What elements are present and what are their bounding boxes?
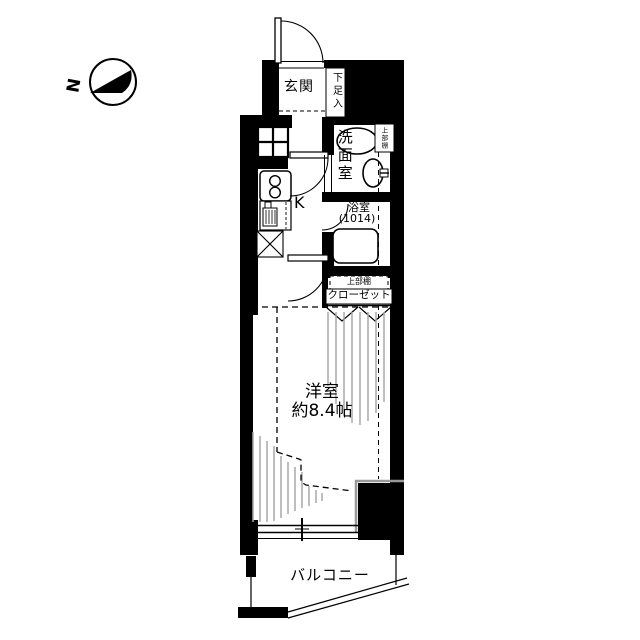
shoe-cabinet-label: 下足入 (330, 72, 341, 111)
washbasin-icon (363, 159, 389, 187)
closet-upper-shelf-label: 上部棚 (330, 278, 388, 286)
kitchen-door-icon (290, 152, 328, 196)
north-arrow-icon (90, 59, 136, 105)
four-pane-grid-icon (258, 127, 288, 157)
x-box-appliance-space-icon (257, 231, 283, 257)
kitchen-fixtures (257, 127, 291, 257)
bifold-door-icon (326, 307, 358, 321)
floor-plan-drawing (0, 0, 640, 640)
washroom-label: 洗面室 (336, 129, 352, 183)
balcony-label: バルコニー (268, 568, 392, 584)
bathroom-size-label: (1014) (330, 213, 384, 225)
bathtub-icon (333, 229, 378, 263)
bifold-door-icon (359, 307, 391, 321)
compass-north-label: N (61, 76, 81, 93)
kitchen-sink-icon (260, 201, 291, 230)
balcony-post (246, 556, 256, 577)
balcony-rail (288, 584, 409, 618)
counter-divider (258, 157, 288, 169)
main-room-label: 洋室 (262, 384, 382, 402)
kitchen-label: K (294, 195, 305, 212)
entrance-door-icon (275, 18, 324, 68)
pillar (358, 483, 404, 540)
main-room-size-label: 約8.4帖 (262, 403, 382, 421)
floor-plan: N 玄関 下足入 洗面室 上部棚 浴室 (1014) K 上部棚 クローゼット … (0, 0, 640, 640)
sliding-window-icon (252, 518, 358, 541)
closet-label: クローゼット (326, 290, 392, 301)
washroom-upper-shelf-label: 上部棚 (380, 127, 387, 150)
two-burner-stove-icon (260, 171, 291, 201)
balcony-post (392, 540, 401, 549)
balcony-base (238, 607, 288, 618)
entrance-label: 玄関 (284, 80, 314, 95)
